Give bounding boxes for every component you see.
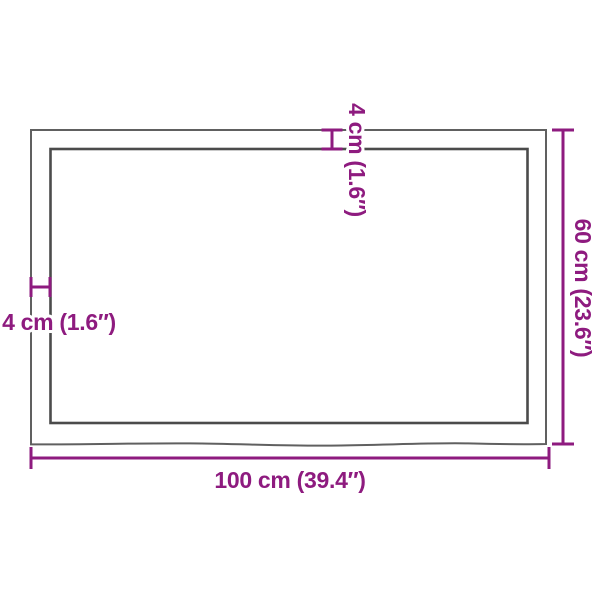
tabletop-outer-edge bbox=[31, 130, 546, 446]
thickness-top-label: 4 cm (1.6″) bbox=[344, 103, 370, 217]
height-dimension-label: 60 cm (23.6″) bbox=[570, 219, 596, 358]
thickness-top-marker bbox=[322, 130, 343, 149]
thickness-left-label: 4 cm (1.6″) bbox=[2, 309, 116, 335]
thickness-dimension-left: 4 cm (1.6″) bbox=[2, 277, 116, 335]
width-dimension: 100 cm (39.4″) bbox=[31, 447, 549, 493]
dimension-diagram: 100 cm (39.4″) 60 cm (23.6″) 4 cm (1.6″)… bbox=[0, 0, 600, 600]
width-dimension-label: 100 cm (39.4″) bbox=[214, 467, 365, 493]
width-dimension-line bbox=[31, 447, 549, 469]
height-dimension: 60 cm (23.6″) bbox=[552, 130, 596, 444]
diagram-svg: 100 cm (39.4″) 60 cm (23.6″) 4 cm (1.6″)… bbox=[0, 0, 600, 600]
thickness-left-marker bbox=[31, 277, 50, 297]
thickness-dimension-top: 4 cm (1.6″) bbox=[322, 103, 371, 217]
tabletop-inner-edge bbox=[51, 149, 528, 423]
